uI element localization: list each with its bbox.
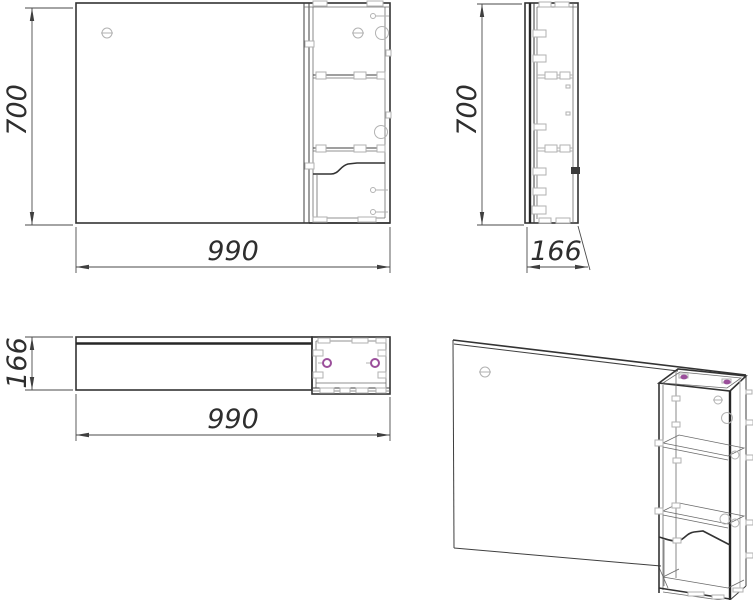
side-height-label: 700 <box>452 84 483 136</box>
plan-width-label: 990 <box>207 404 259 435</box>
iso-mirror-panel <box>453 340 746 588</box>
curved-shelf-profile <box>659 531 730 545</box>
plan-width-dimension: 990 <box>76 394 390 441</box>
plan-view: 166 990 <box>2 337 390 441</box>
mounting-hole-icon <box>101 28 113 38</box>
fitting-marks <box>655 390 753 599</box>
iso-cabinet-body <box>655 371 753 600</box>
side-depth-dimension: 166 <box>527 226 590 273</box>
hole-icons <box>713 396 739 527</box>
side-height-dimension: 700 <box>452 4 524 225</box>
isometric-view <box>453 340 753 600</box>
iso-cabinet-top <box>659 369 746 391</box>
hinge-icon <box>723 380 730 385</box>
mounting-hole-icon <box>479 367 491 377</box>
hinge-icon <box>318 359 331 367</box>
fitting-marks <box>305 1 391 222</box>
profile-step <box>571 167 580 174</box>
shelf-lines <box>313 75 385 151</box>
front-view: 700 990 <box>2 1 391 273</box>
plan-left-outline <box>76 337 312 390</box>
screw-icon <box>371 14 390 19</box>
plan-depth-label: 166 <box>2 337 33 389</box>
technical-drawing-canvas: 700 990 <box>0 0 753 600</box>
front-height-dimension: 700 <box>2 8 73 225</box>
hinge-icon <box>366 359 379 367</box>
front-width-dimension: 990 <box>76 227 390 273</box>
front-height-label: 700 <box>2 84 33 136</box>
side-depth-label: 166 <box>530 236 582 267</box>
fitting-marks <box>532 2 570 223</box>
side-view: 700 166 <box>452 2 590 273</box>
front-outline <box>76 3 390 223</box>
hinge-icon <box>680 375 687 380</box>
curved-shelf-profile <box>313 163 385 174</box>
mirror-cabinet-drawing: 700 990 <box>0 0 753 600</box>
hole-icons <box>352 27 389 215</box>
plan-depth-dimension: 166 <box>2 337 73 390</box>
front-width-label: 990 <box>207 236 259 267</box>
